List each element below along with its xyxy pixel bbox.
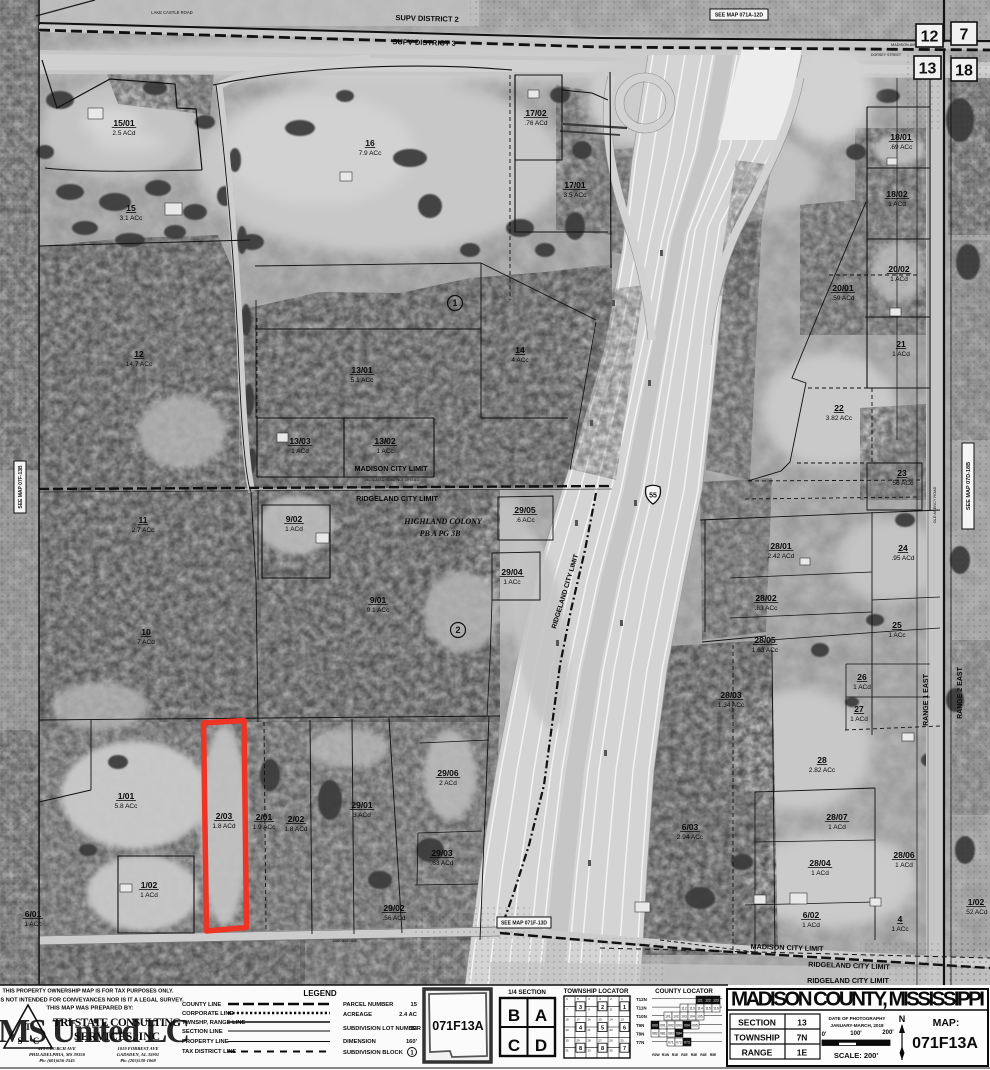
svg-text:R2W: R2W	[652, 1053, 660, 1057]
svg-text:101: 101	[665, 1015, 671, 1019]
svg-text:092: 092	[668, 1024, 674, 1028]
svg-text:25: 25	[620, 1038, 624, 1042]
svg-text:35: 35	[609, 1049, 613, 1053]
svg-text:121: 121	[697, 999, 703, 1003]
svg-text:MAP:: MAP:	[933, 1017, 960, 1029]
svg-text:T7N: T7N	[636, 1040, 644, 1045]
svg-text:COUNTY LINE: COUNTY LINE	[182, 1002, 221, 1008]
svg-text:THIS MAP WAS PREPARED BY:: THIS MAP WAS PREPARED BY:	[47, 1006, 134, 1012]
svg-text:30: 30	[565, 1038, 569, 1042]
svg-text:102: 102	[673, 1015, 679, 1019]
svg-text:T8N: T8N	[636, 1031, 644, 1036]
svg-text:0': 0'	[822, 1032, 827, 1038]
svg-text:7N: 7N	[797, 1033, 808, 1043]
svg-text:095: 095	[692, 1024, 698, 1028]
svg-text:26: 26	[609, 1038, 613, 1042]
svg-text:N: N	[899, 1014, 906, 1024]
svg-text:100': 100'	[850, 1031, 862, 1037]
svg-text:1: 1	[623, 1005, 626, 1011]
svg-text:1E: 1E	[797, 1048, 808, 1058]
svg-text:093: 093	[676, 1024, 682, 1028]
svg-text:PHILADELPHIA, MS 39350: PHILADELPHIA, MS 39350	[29, 1052, 86, 1057]
svg-text:IT IS NOT INTENDED FOR CONVEYA: IT IS NOT INTENDED FOR CONVEYANCES NOR I…	[0, 998, 184, 1004]
svg-text:094: 094	[684, 1024, 690, 1028]
svg-text:CORPORATE LINE: CORPORATE LINE	[182, 1011, 234, 1017]
svg-text:28: 28	[587, 1038, 591, 1042]
svg-text:PROPERTY LINE: PROPERTY LINE	[182, 1039, 229, 1045]
svg-text:3: 3	[579, 1005, 582, 1011]
svg-text:11: 11	[609, 1007, 612, 1011]
svg-text:114: 114	[697, 1007, 703, 1011]
svg-text:090: 090	[652, 1024, 658, 1028]
svg-text:T11N: T11N	[636, 1006, 647, 1011]
svg-text:A: A	[535, 1006, 547, 1025]
svg-text:B: B	[508, 1006, 520, 1025]
svg-text:072: 072	[676, 1041, 682, 1045]
svg-text:103: 103	[681, 1015, 687, 1019]
svg-text:R1E: R1E	[672, 1053, 679, 1057]
svg-text:082: 082	[652, 1032, 658, 1036]
svg-text:073: 073	[684, 1041, 690, 1045]
svg-text:R1W: R1W	[662, 1053, 670, 1057]
svg-text:RANGE: RANGE	[742, 1048, 773, 1058]
svg-text:R5E: R5E	[710, 1053, 717, 1057]
svg-text:083: 083	[668, 1032, 674, 1036]
svg-text:104: 104	[689, 1015, 695, 1019]
svg-text:112: 112	[681, 1007, 687, 1011]
svg-text:071: 071	[668, 1041, 674, 1045]
svg-text:16: 16	[587, 1018, 591, 1022]
svg-text:LEGEND: LEGEND	[303, 989, 337, 998]
svg-text:29: 29	[576, 1038, 580, 1042]
svg-text:1/4 SECTION: 1/4 SECTION	[508, 989, 546, 996]
svg-text:17: 17	[576, 1018, 580, 1022]
svg-text:116: 116	[713, 1007, 719, 1011]
svg-text:31: 31	[565, 1049, 569, 1053]
svg-text:TWNSHP, RANGE LINE: TWNSHP, RANGE LINE	[182, 1020, 245, 1026]
svg-text:071F13A: 071F13A	[432, 1019, 483, 1033]
svg-text:R3E: R3E	[691, 1053, 698, 1057]
svg-text:6: 6	[623, 1026, 626, 1032]
svg-text:13: 13	[620, 1018, 624, 1022]
svg-text:15: 15	[411, 1002, 418, 1008]
svg-text:23: 23	[411, 1026, 418, 1032]
svg-text:105: 105	[697, 1015, 703, 1019]
svg-text:DATE OF PHOTOGRAPHY: DATE OF PHOTOGRAPHY	[829, 1016, 886, 1021]
svg-text:SCALE: 200': SCALE: 200'	[834, 1051, 879, 1060]
svg-text:081: 081	[660, 1032, 666, 1036]
svg-text:Ph: (205)538-1068: Ph: (205)538-1068	[120, 1058, 156, 1063]
svg-text:2.4 AC: 2.4 AC	[399, 1012, 418, 1018]
svg-text:8: 8	[579, 1046, 582, 1052]
svg-text:SECTION: SECTION	[738, 1018, 776, 1028]
svg-text:27: 27	[598, 1038, 602, 1042]
svg-text:R4E: R4E	[700, 1053, 707, 1057]
svg-text:Ph: (601)656-2545: Ph: (601)656-2545	[39, 1058, 75, 1063]
svg-text:1019 FORREST AVE: 1019 FORREST AVE	[117, 1046, 158, 1051]
svg-text:MADISON COUNTY, MISSISSIPPI: MADISON COUNTY, MISSISSIPPI	[731, 988, 985, 1011]
svg-text:MS United LC: MS United LC	[0, 1013, 190, 1050]
svg-text:23: 23	[609, 1028, 613, 1032]
svg-text:8: 8	[601, 1046, 604, 1052]
svg-text:TOWNSHIP LOCATOR: TOWNSHIP LOCATOR	[564, 988, 629, 995]
svg-text:113: 113	[689, 1007, 695, 1011]
svg-text:T9N: T9N	[636, 1023, 644, 1028]
svg-text:SUBDIVISION BLOCK: SUBDIVISION BLOCK	[343, 1050, 404, 1056]
svg-text:THIS PROPERTY OWNERSHIP MAP IS: THIS PROPERTY OWNERSHIP MAP IS FOR TAX P…	[2, 989, 174, 995]
svg-text:13: 13	[797, 1018, 807, 1028]
svg-text:5: 5	[601, 1026, 604, 1032]
svg-text:T10N: T10N	[636, 1014, 647, 1019]
svg-text:SECTION LINE: SECTION LINE	[182, 1029, 223, 1035]
svg-text:115: 115	[705, 1007, 711, 1011]
svg-text:123: 123	[713, 999, 719, 1003]
svg-text:415 CHURCH AVE: 415 CHURCH AVE	[37, 1046, 76, 1051]
svg-text:ACREAGE: ACREAGE	[343, 1012, 372, 1018]
svg-text:15: 15	[598, 1018, 602, 1022]
svg-text:DIMENSION: DIMENSION	[343, 1039, 376, 1045]
svg-text:160': 160'	[406, 1039, 418, 1045]
svg-text:GADSDEN, AL 35901: GADSDEN, AL 35901	[117, 1052, 159, 1057]
svg-text:JANUARY-MARCH, 2018: JANUARY-MARCH, 2018	[830, 1023, 884, 1028]
svg-text:COUNTY LOCATOR: COUNTY LOCATOR	[655, 988, 713, 995]
svg-text:T12N: T12N	[636, 997, 647, 1002]
svg-text:122: 122	[705, 999, 711, 1003]
svg-text:PARCEL NUMBER: PARCEL NUMBER	[343, 1002, 394, 1008]
svg-text:084: 084	[676, 1032, 682, 1036]
svg-text:091: 091	[660, 1024, 666, 1028]
svg-text:D: D	[535, 1036, 547, 1055]
svg-text:19: 19	[565, 1028, 569, 1032]
svg-text:7: 7	[623, 1046, 626, 1052]
svg-text:200': 200'	[882, 1030, 894, 1036]
svg-text:C: C	[508, 1036, 520, 1055]
svg-text:071F13A: 071F13A	[912, 1035, 978, 1052]
svg-text:TOWNSHIP: TOWNSHIP	[734, 1033, 780, 1043]
svg-text:R2E: R2E	[681, 1053, 688, 1057]
svg-text:33: 33	[587, 1049, 591, 1053]
svg-text:2: 2	[601, 1005, 604, 1011]
svg-text:21: 21	[587, 1028, 591, 1032]
svg-text:18: 18	[565, 1018, 569, 1022]
svg-text:14: 14	[609, 1018, 613, 1022]
